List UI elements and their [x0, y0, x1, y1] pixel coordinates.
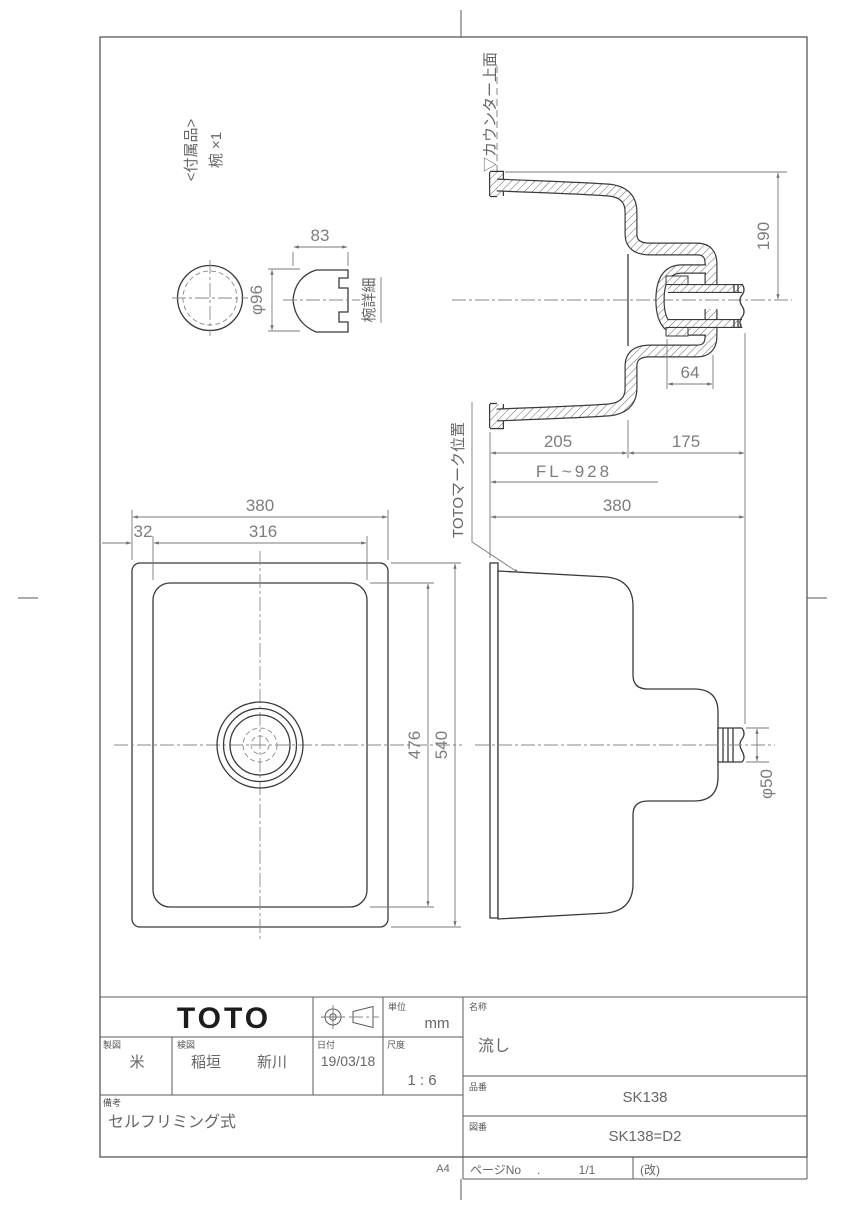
dim-bowl-diameter: φ96 [247, 285, 266, 315]
scale-value: 1 : 6 [407, 1072, 436, 1089]
name-label: 名称 [469, 1001, 487, 1012]
toto-mark-label: TOTOマーク位置 [450, 422, 467, 538]
unit-value: mm [425, 1015, 450, 1032]
dim-plan-length-inner: 476 [405, 731, 424, 759]
paper-size-label: A4 [436, 1163, 449, 1175]
toto-mark-callout: TOTOマーク位置 [450, 402, 519, 573]
dim-plan-length-outer: 540 [432, 731, 451, 759]
drawing-canvas: <付属品> 椀 ×1 83 φ96 椀詳細 ▽カウンター上面 [0, 0, 848, 1200]
remarks-value: セルフリミング式 [108, 1113, 236, 1131]
bowl-plan-view [172, 260, 248, 336]
drawing-number-value: SK138=D2 [609, 1128, 682, 1145]
dim-rear: 175 [672, 432, 700, 451]
name-value: 流し [478, 1037, 510, 1055]
checker-value-1: 稲垣 [191, 1054, 221, 1071]
dim-front: 205 [544, 432, 572, 451]
accessory-header: <付属品> [183, 119, 200, 182]
date-label: 日付 [317, 1040, 335, 1050]
drain-assembly-section [660, 269, 744, 336]
title-block: TOTO 単位 mm 製図 米 検図 稲垣 新川 日付 19/03/18 尺度 … [100, 997, 807, 1179]
dim-plan-width-inner: 316 [249, 522, 277, 541]
accessory-quantity: 椀 ×1 [208, 132, 225, 168]
dim-section-depth: 190 [754, 222, 773, 250]
bowl-detail-label: 椀詳細 [361, 277, 378, 322]
accessory-detail: <付属品> 椀 ×1 83 φ96 椀詳細 [172, 119, 381, 336]
dim-side-depth: 380 [603, 496, 631, 515]
dim-bowl-width: 83 [311, 226, 330, 245]
date-value: 19/03/18 [321, 1053, 376, 1069]
remarks-label: 備考 [103, 1097, 121, 1108]
page-no-label: ページNo [470, 1163, 521, 1177]
projection-symbol-icon [321, 1005, 379, 1029]
plan-view: 380 316 32 476 540 [102, 496, 462, 939]
dim-drain-width: 64 [681, 363, 700, 382]
scale-label: 尺度 [387, 1039, 405, 1050]
dim-plan-width-outer: 380 [246, 496, 274, 515]
revision-label: (改) [640, 1163, 660, 1177]
page-no-dot: . [537, 1163, 540, 1177]
bowl-section-view [283, 270, 360, 332]
checker-value-2: 新川 [257, 1054, 287, 1071]
dim-plan-offset: 32 [134, 522, 153, 541]
drafter-label: 製図 [103, 1039, 121, 1050]
unit-label: 単位 [388, 1001, 406, 1012]
toto-logo: TOTO [177, 1002, 271, 1035]
drawing-number-label: 図番 [469, 1121, 487, 1132]
dim-floor-level: FL~928 [536, 462, 612, 481]
drawing-sheet: <付属品> 椀 ×1 83 φ96 椀詳細 ▽カウンター上面 [0, 0, 848, 1200]
checker-label: 検図 [177, 1039, 195, 1050]
counter-top-label: ▽カウンター上面 [482, 52, 499, 172]
outlet-dimension: φ50 [746, 728, 776, 799]
drafter-value: 米 [129, 1054, 144, 1071]
sink-flange-plate [490, 563, 498, 918]
product-label: 品番 [469, 1081, 487, 1092]
page-no-value: 1/1 [579, 1163, 596, 1177]
dim-outlet-diameter: φ50 [757, 769, 776, 799]
product-value: SK138 [622, 1089, 667, 1106]
side-view: 380 φ50 TOTOマーク位置 [450, 402, 776, 919]
